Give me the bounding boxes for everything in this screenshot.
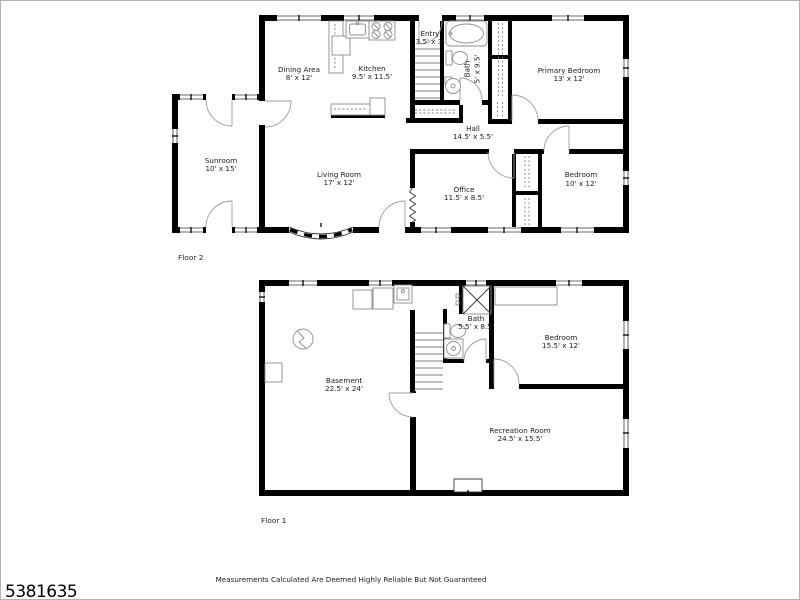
stove: [369, 21, 395, 40]
bedroom-closet: [495, 287, 557, 305]
window: [466, 280, 486, 286]
floor2-walls: [172, 15, 629, 233]
disclaimer-text: Measurements Calculated Are Deemed Highl…: [216, 575, 487, 584]
floor2-label: Floor 2: [178, 253, 203, 262]
room-dims: 9.5' x 11.5': [352, 72, 392, 81]
room-dims: 10' x 15': [205, 164, 236, 173]
bath-sink: [444, 339, 463, 358]
bay-window: [289, 223, 353, 239]
room-dims: 22.5' x 24': [325, 384, 363, 393]
bedroom-door: [544, 126, 569, 151]
window: [344, 15, 374, 21]
dishwasher: [332, 36, 350, 55]
window: [556, 280, 582, 286]
bathtub: [446, 21, 487, 46]
window: [277, 15, 321, 21]
washer: [353, 290, 372, 309]
room-dims: 5' x 9.5': [473, 55, 482, 84]
bedroom-door: [494, 359, 519, 384]
room-dims: 14.5' x 5.5': [453, 132, 493, 141]
window: [623, 171, 629, 185]
window: [456, 15, 484, 21]
window: [369, 280, 392, 286]
listing-number: 5381635: [5, 582, 77, 599]
room-dims: 8' x 12': [286, 73, 313, 82]
window: [259, 292, 265, 302]
window: [561, 227, 594, 233]
primary-bedroom-door: [512, 95, 538, 121]
room-dims: 10' x 12': [565, 179, 596, 188]
patio-door: [379, 201, 405, 227]
floor1-walls: [259, 280, 629, 496]
room-label: Bath: [463, 61, 472, 78]
window: [488, 227, 521, 233]
floor1-windows: [259, 280, 629, 448]
room-dims: 13' x 12': [553, 74, 584, 83]
floor1-stairs: [415, 333, 443, 389]
room-label: Bedroom: [565, 170, 598, 179]
floorplan-page: Dining Area 8' x 12' Kitchen 9.5' x 11.5…: [0, 0, 800, 600]
room-dims: 3.5' x 3': [416, 37, 445, 46]
laundry-sink: [394, 285, 412, 303]
floor1-label: Floor 1: [261, 516, 287, 525]
window: [235, 227, 257, 233]
window: [421, 227, 451, 233]
chimney-box: [265, 363, 282, 382]
room-dims: 11.5' x 8.5': [444, 193, 484, 202]
room-dims: 24.5' x 15.5': [498, 434, 543, 443]
kitchen-island: [331, 98, 385, 118]
window: [623, 321, 629, 349]
bath-sink: [445, 77, 461, 94]
floor1-plan: Basement 22.5' x 24' Bath 5.5' x 8.5' Be…: [259, 280, 629, 525]
sunroom-living-door: [265, 101, 291, 127]
room-dims: 5.5' x 8.5': [458, 322, 494, 331]
window: [623, 419, 629, 448]
floorplan-drawing: Dining Area 8' x 12' Kitchen 9.5' x 11.5…: [1, 1, 799, 599]
window: [289, 280, 317, 286]
window: [235, 94, 257, 100]
floor2-plan: Dining Area 8' x 12' Kitchen 9.5' x 11.5…: [172, 15, 629, 262]
sunroom-bottom-door: [206, 201, 232, 227]
bath-door: [464, 339, 486, 361]
office-door: [488, 152, 514, 178]
floor2-stairs: [415, 49, 440, 98]
sunroom-top-door: [206, 100, 232, 126]
electrical-panel: [293, 329, 313, 349]
basement-door: [389, 393, 413, 417]
window: [172, 129, 178, 143]
window: [552, 15, 584, 21]
window: [623, 59, 629, 77]
window: [180, 227, 203, 233]
window: [180, 94, 203, 100]
room-dims: 15.5' x 12': [542, 341, 580, 350]
room-dims: 17' x 12': [323, 178, 354, 187]
footer: Measurements Calculated Are Deemed Highl…: [5, 575, 486, 599]
dryer: [373, 288, 393, 309]
